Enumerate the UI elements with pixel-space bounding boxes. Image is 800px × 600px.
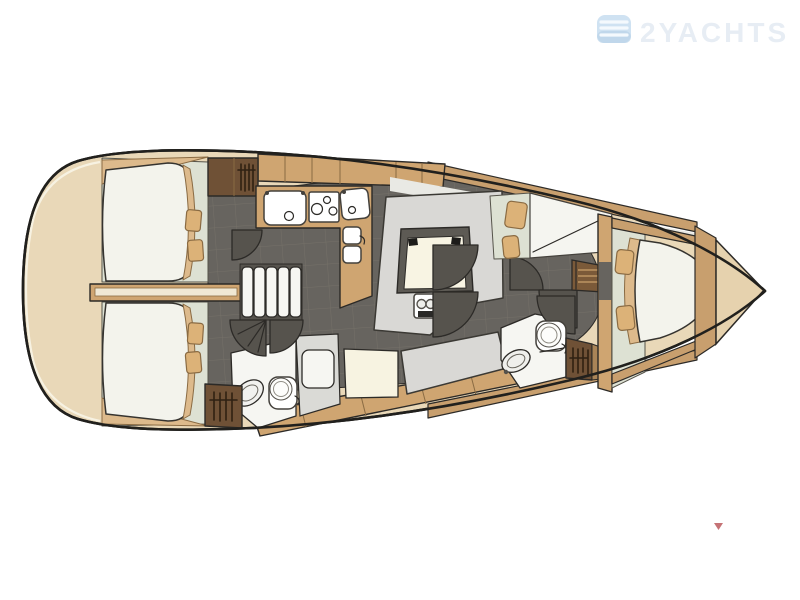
double-berth bbox=[103, 163, 193, 281]
tap bbox=[504, 370, 508, 374]
hanging-locker-aft-starboard bbox=[205, 384, 242, 428]
engine-corridor bbox=[90, 284, 242, 301]
step bbox=[254, 267, 265, 317]
pillow bbox=[187, 323, 203, 345]
pillow bbox=[187, 239, 203, 261]
pillow bbox=[502, 235, 520, 259]
pillow bbox=[185, 351, 202, 373]
waves-badge-icon bbox=[597, 15, 631, 43]
step bbox=[266, 267, 277, 317]
pillow bbox=[616, 305, 635, 331]
corridor-stripe bbox=[95, 288, 237, 296]
second-sink bbox=[340, 188, 371, 221]
hanging-locker-forward bbox=[566, 338, 592, 380]
anchor-locker bbox=[716, 240, 764, 344]
chart-seat bbox=[344, 349, 398, 398]
watermark-brand-text: 2YACHTS bbox=[640, 17, 789, 48]
pillow bbox=[615, 249, 634, 275]
step bbox=[242, 267, 253, 317]
hanging-locker-aft-port bbox=[208, 158, 258, 196]
marine-toilet bbox=[269, 377, 299, 409]
watermark: 2YACHTS bbox=[597, 15, 789, 48]
aft-cabin-port bbox=[102, 157, 208, 282]
red-corner-marker bbox=[714, 523, 723, 530]
cabin-doorway bbox=[599, 262, 612, 300]
marine-toilet bbox=[536, 321, 566, 353]
bulkhead bbox=[598, 214, 612, 392]
yacht-layout-canvas: 2YACHTS bbox=[0, 0, 800, 600]
shower-tray bbox=[302, 350, 334, 388]
galley-sink bbox=[264, 191, 306, 225]
pillow bbox=[185, 209, 202, 231]
aft-cabin-starboard bbox=[102, 302, 208, 426]
stove-three-burner bbox=[309, 192, 339, 222]
table-corner-bracket bbox=[451, 237, 461, 245]
pillow bbox=[504, 201, 527, 230]
table-corner-bracket bbox=[408, 238, 418, 246]
double-berth bbox=[103, 303, 193, 421]
step bbox=[278, 267, 289, 317]
yacht-floorplan-page: 2YACHTS bbox=[0, 0, 800, 600]
companionway-stairs bbox=[240, 264, 302, 320]
step bbox=[290, 267, 301, 317]
